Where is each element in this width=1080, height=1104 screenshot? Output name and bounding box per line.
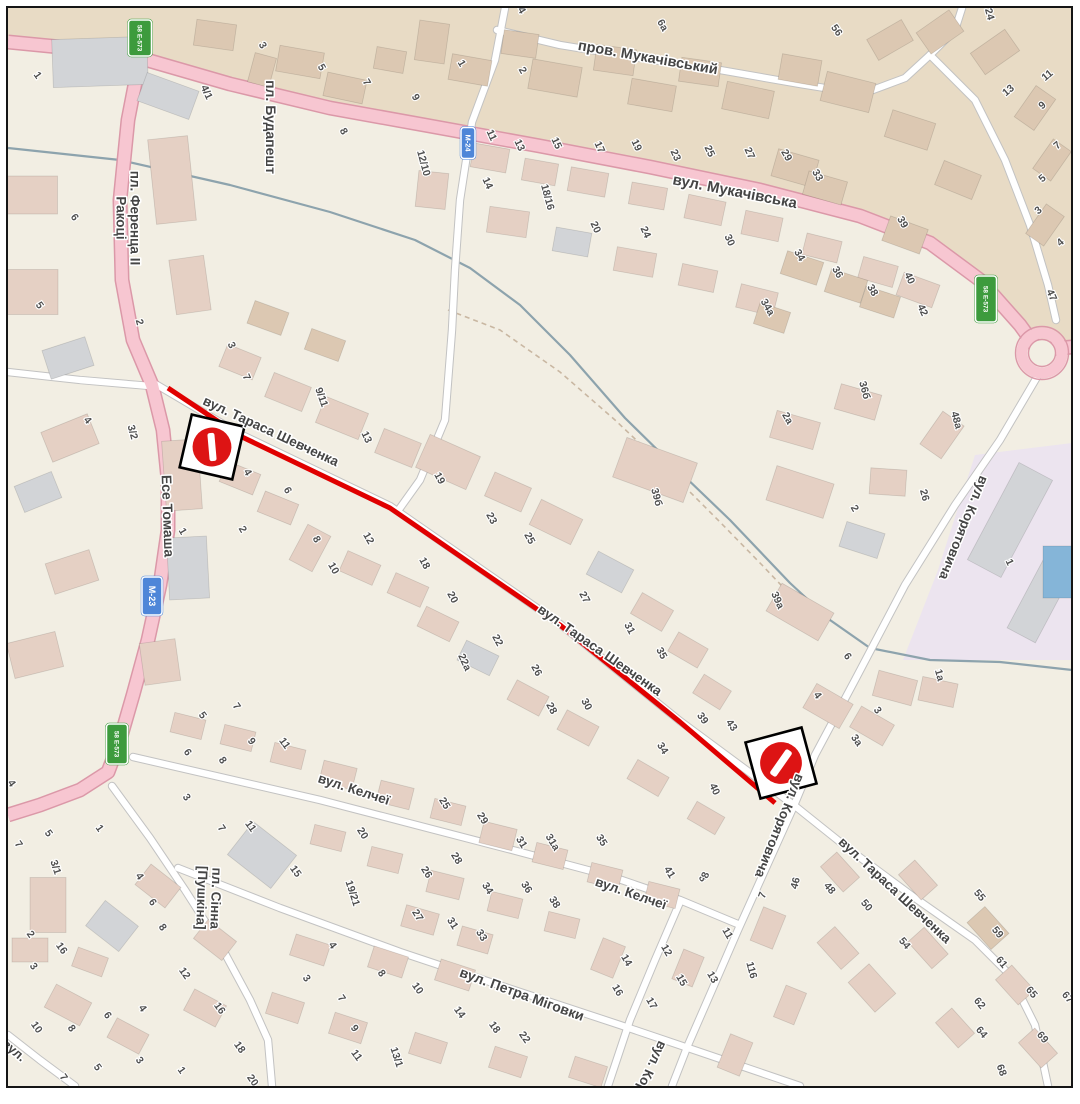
- map-content: 58 Е-57358 Е-57358 Е-573М-24М-23пров. Му…: [0, 5, 1076, 1104]
- route-badge-label: 58 Е-573: [136, 25, 143, 52]
- map-page: 58 Е-57358 Е-57358 Е-573М-24М-23пров. Му…: [0, 0, 1080, 1104]
- route-badge-label: М-24: [463, 134, 472, 152]
- map-svg[interactable]: 58 Е-57358 Е-57358 Е-573М-24М-23пров. Му…: [0, 0, 1080, 1104]
- building: [486, 206, 529, 237]
- route-badge-e573: 58 Е-573: [974, 275, 997, 323]
- route-badge-e573: 58 Е-573: [127, 19, 152, 57]
- route-badge-m: М-23: [141, 576, 163, 616]
- building: [169, 255, 211, 314]
- route-badge-label: М-23: [147, 586, 157, 607]
- route-badge-e573: 58 Е-573: [105, 723, 128, 765]
- building: [501, 30, 539, 59]
- building: [373, 47, 406, 74]
- building: [414, 20, 449, 64]
- building: [148, 136, 197, 225]
- building: [12, 938, 48, 962]
- building: [415, 171, 449, 210]
- street-label: Есе Томаша: [159, 475, 178, 558]
- route-badge-label: 58 Е-573: [113, 731, 120, 758]
- no-entry-sign: [180, 415, 245, 480]
- building: [30, 878, 66, 933]
- roundabout-island: [1029, 340, 1056, 367]
- building: [1043, 546, 1073, 598]
- route-badge-label: 58 Е-573: [982, 286, 989, 313]
- street-label: пл. Будапешт: [263, 80, 279, 174]
- route-badge-m: М-24: [460, 126, 476, 159]
- building: [193, 19, 236, 50]
- building: [869, 468, 907, 496]
- street-label: пл. Сінна[Пушкіна]: [193, 866, 224, 931]
- building: [3, 176, 58, 214]
- building: [139, 639, 180, 686]
- building: [0, 270, 58, 315]
